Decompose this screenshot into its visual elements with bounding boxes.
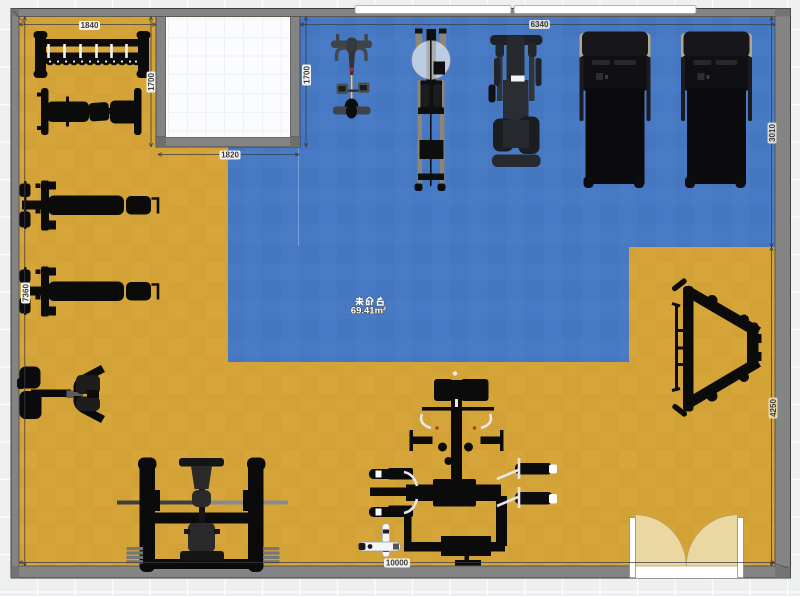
svg-text:1840: 1840 [81,21,99,30]
svg-text:1820: 1820 [221,151,239,160]
svg-text:1700: 1700 [147,73,156,91]
svg-text:3010: 3010 [768,124,777,142]
svg-text:69.41m²: 69.41m² [351,306,386,317]
svg-text:10000: 10000 [386,559,409,568]
svg-text:4250: 4250 [769,399,778,417]
svg-text:1700: 1700 [303,66,312,84]
svg-text:6340: 6340 [531,20,549,29]
svg-text:7360: 7360 [22,284,31,302]
